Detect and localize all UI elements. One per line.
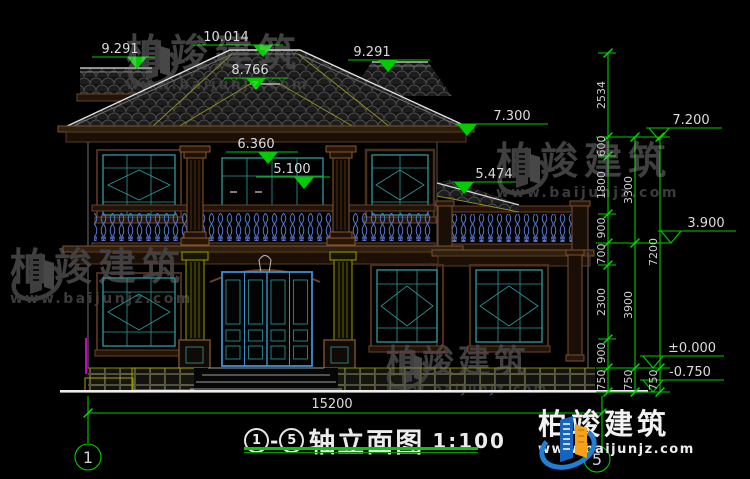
- level-flag-3900: 3.900: [658, 216, 736, 243]
- corner-pilaster: [566, 250, 584, 361]
- company-logo: 柏竣建筑 www.baijunjz.com: [538, 410, 695, 457]
- svg-text:5.100: 5.100: [273, 162, 310, 177]
- porch-column-right: [324, 252, 356, 370]
- svg-text:750: 750: [647, 370, 660, 391]
- level-flag-eave: 7.300: [455, 109, 548, 136]
- window-lower-mid-right: [369, 265, 445, 352]
- svg-text:750: 750: [622, 370, 635, 391]
- dimension-labels-col2: 3300 3900 750: [622, 176, 635, 391]
- watermark-logo-icon: [496, 142, 552, 200]
- svg-text:7.300: 7.300: [493, 109, 530, 124]
- balcony-balustrade: [92, 205, 435, 249]
- svg-text:2300: 2300: [595, 288, 608, 316]
- level-flag-7200: 7.200: [646, 113, 722, 140]
- axis-bubble-1: 1: [75, 444, 101, 470]
- level-flag-balcony-rail: 5.100: [256, 162, 330, 189]
- svg-text:3900: 3900: [622, 291, 635, 319]
- svg-text:750: 750: [595, 370, 608, 391]
- company-logo-icon: [538, 410, 602, 472]
- watermark: 柏竣建筑 www.baijunjz.com: [386, 345, 549, 396]
- dimension-chain-right: 2534 600 1800 900 700 2300 900 750 3300 …: [595, 49, 670, 396]
- drawing-title: 1 - 5 轴立面图 1:100: [244, 421, 506, 460]
- window-lower-far-right: [468, 265, 550, 352]
- level-flag-zero: ±0.000: [640, 341, 724, 368]
- watermark-logo-icon: [126, 34, 182, 92]
- svg-text:±0.000: ±0.000: [668, 341, 716, 356]
- window-upper-left: [95, 150, 183, 223]
- watermark: 柏竣建筑 www.baijunjz.com: [496, 142, 679, 201]
- svg-text:6.360: 6.360: [237, 137, 274, 152]
- dimension-labels-col1: 2534 600 1800 900 700 2300 900 750: [595, 81, 608, 391]
- ground-line: [60, 390, 648, 393]
- svg-text:1: 1: [83, 448, 93, 467]
- watermark: 柏竣建筑 www.baijunjz.com: [126, 34, 309, 93]
- title-underline: [244, 447, 478, 450]
- svg-text:900: 900: [595, 343, 608, 364]
- svg-text:700: 700: [595, 244, 608, 265]
- svg-text:7.200: 7.200: [672, 113, 709, 128]
- entrance-door: [222, 272, 312, 366]
- entrance-steps: [190, 368, 342, 390]
- title-text: 轴立面图: [308, 421, 424, 460]
- watermark: 柏竣建筑 www.baijunjz.com: [10, 248, 193, 307]
- cad-elevation-canvas: 10.014 9.291 8.766 9.291 7.300 6.360 5.1…: [0, 0, 750, 479]
- title-underline-thin: [244, 452, 478, 454]
- svg-text:900: 900: [595, 218, 608, 239]
- svg-text:7200: 7200: [647, 238, 660, 266]
- svg-text:3.900: 3.900: [687, 216, 724, 231]
- svg-text:-0.750: -0.750: [669, 365, 711, 380]
- svg-text:2534: 2534: [595, 81, 608, 109]
- svg-text:15200: 15200: [311, 397, 352, 412]
- dimension-ticks: [604, 49, 664, 396]
- watermark-logo-icon: [10, 248, 66, 306]
- window-upper-right: [364, 150, 436, 223]
- svg-text:9.291: 9.291: [353, 45, 390, 60]
- watermark-logo-icon: [386, 345, 432, 395]
